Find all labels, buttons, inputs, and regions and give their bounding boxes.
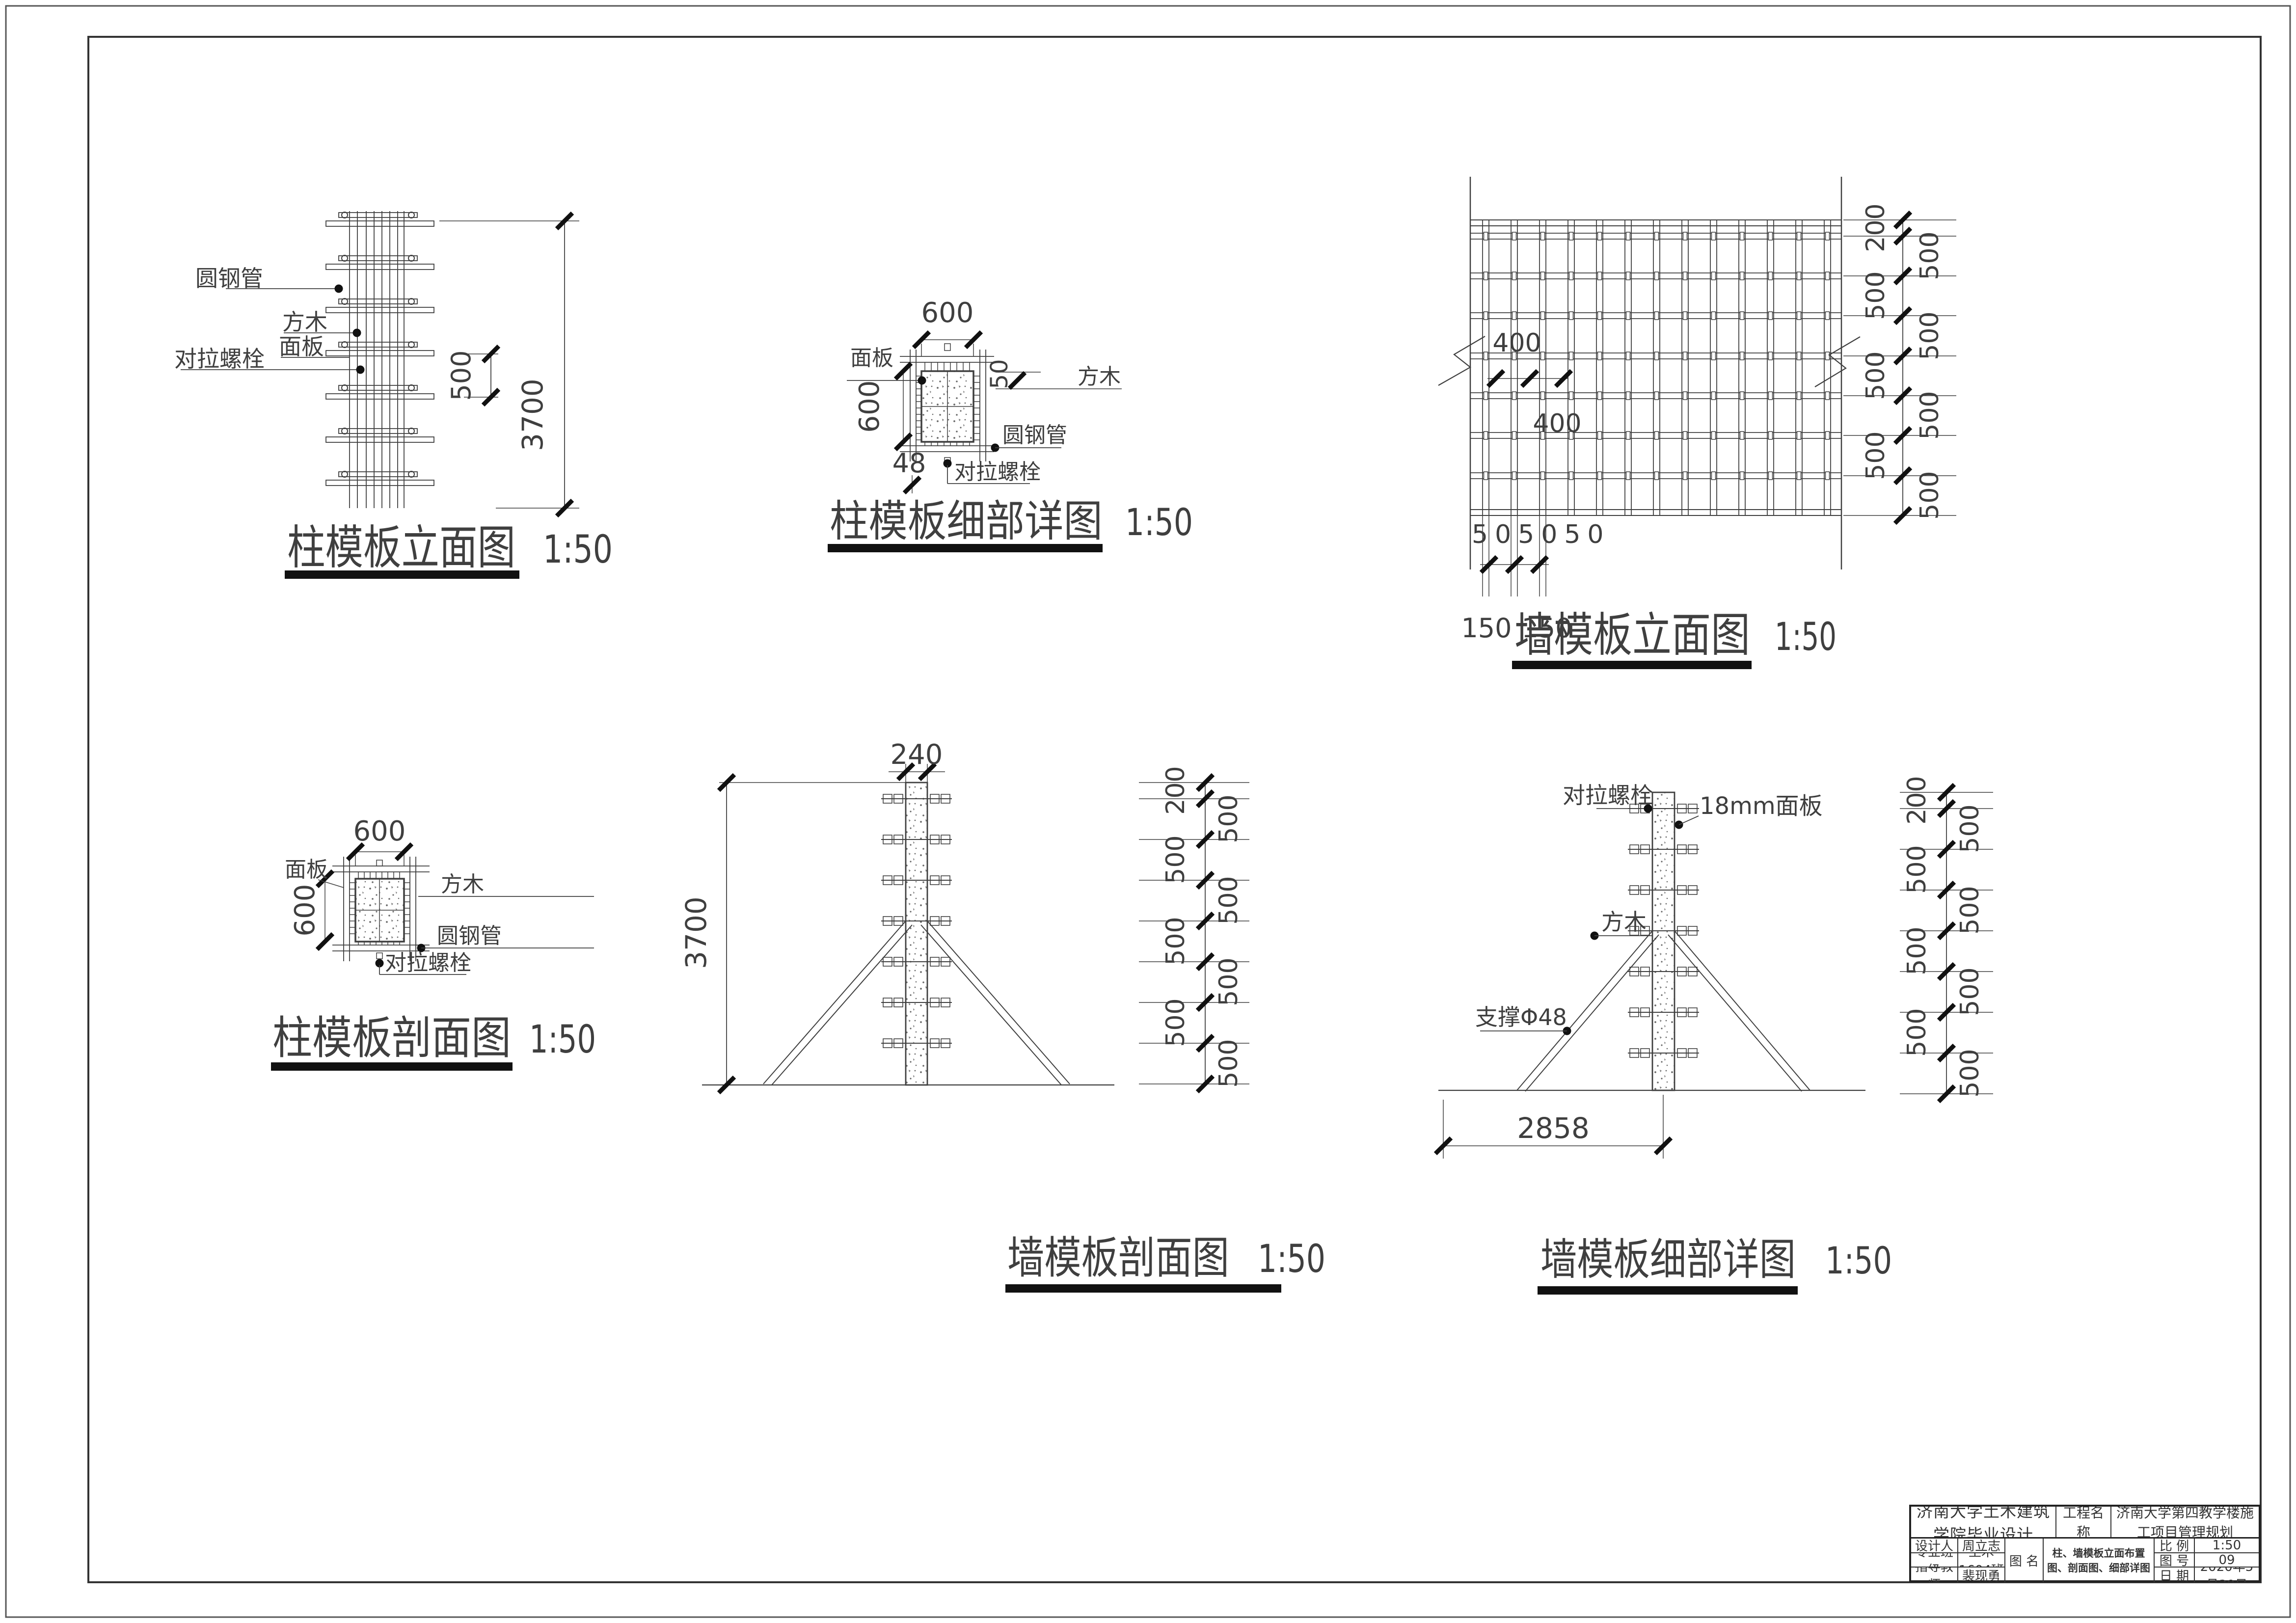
clamp-node <box>1769 312 1773 320</box>
clamp-node <box>1626 232 1630 240</box>
v3-dim-150-a: 150 <box>1461 613 1512 644</box>
rect <box>377 953 382 959</box>
clamp-node <box>1826 352 1830 360</box>
v6-label-brace-phi48: 支撑Φ48 <box>1475 1004 1567 1030</box>
clamp-node <box>1769 392 1773 400</box>
clamp-node <box>1712 472 1716 480</box>
clamp-node <box>1626 472 1630 480</box>
clamp-node <box>1683 232 1687 240</box>
clamp-node <box>1655 272 1659 280</box>
clamp-node <box>1769 352 1773 360</box>
rect <box>326 264 434 270</box>
drawing-no-value: 09 <box>2195 1553 2259 1568</box>
rect <box>339 256 417 261</box>
v6-chain-500: 500 <box>1955 804 1985 853</box>
v2-label-square-timber: 方木 <box>1078 364 1121 389</box>
clamp-node <box>1484 232 1488 240</box>
v1-label-round-steel-pipe: 圆钢管 <box>195 265 263 292</box>
clamp-node <box>1740 312 1744 320</box>
line <box>1679 816 1699 825</box>
break-mark <box>1438 336 1485 385</box>
clamp-node <box>1484 432 1488 439</box>
clamp-node <box>1598 432 1602 439</box>
clamp-node <box>1541 352 1545 360</box>
clamp-node <box>1797 432 1801 439</box>
rect <box>339 472 417 477</box>
clamp-node <box>1655 432 1659 439</box>
clamp-node <box>1826 472 1830 480</box>
clamp-node <box>1513 432 1516 439</box>
clamp-node <box>1655 232 1659 240</box>
v6-chain-500: 500 <box>1955 1049 1985 1097</box>
view6-title: 墙模板细部详图 <box>1540 1234 1796 1285</box>
clamp-node <box>1740 272 1744 280</box>
clamp-node <box>1826 312 1830 320</box>
clamp-node <box>1484 352 1488 360</box>
class-label: 专业班级 <box>1911 1553 1958 1568</box>
clamp-node <box>1740 392 1744 400</box>
v6-label-panel-18mm: 18mm面板 <box>1700 792 1823 820</box>
v4-dim-600-left: 600 <box>289 884 321 937</box>
line <box>921 925 1061 1085</box>
date-value: 2020年5月30日 <box>2195 1568 2259 1582</box>
v6-dim-2858: 2858 <box>1517 1111 1590 1145</box>
v5-dim-240: 240 <box>891 739 943 771</box>
clamp-node <box>1541 272 1545 280</box>
v4-label-square-timber: 方木 <box>441 872 484 897</box>
clamp-node <box>1626 432 1630 439</box>
clamp-node <box>1683 352 1687 360</box>
v6-chain-500: 500 <box>1955 886 1985 934</box>
view2-scale: 1:50 <box>1125 500 1193 544</box>
v2-label-panel: 面板 <box>850 346 893 371</box>
v2-dim-600-top: 600 <box>921 297 974 329</box>
v3-dim-400-b: 400 <box>1533 409 1581 438</box>
v6-chain-500: 500 <box>1902 1008 1932 1056</box>
clamp-node <box>1484 472 1488 480</box>
rect <box>326 437 434 442</box>
title-underline <box>1538 1286 1798 1295</box>
clamp-node <box>1712 312 1716 320</box>
line <box>772 925 912 1085</box>
v4-label-tie-bolt: 对拉螺栓 <box>385 950 471 975</box>
rect <box>6 6 2290 1617</box>
clamp-node <box>1598 352 1602 360</box>
view6-scale: 1:50 <box>1825 1239 1892 1282</box>
v5-chain-500: 500 <box>1214 957 1243 1006</box>
clamp-node <box>1740 352 1744 360</box>
v1-label-tie-bolt: 对拉螺栓 <box>174 346 265 372</box>
scale-value: 1:50 <box>2195 1539 2259 1553</box>
clamp-node <box>1626 352 1630 360</box>
clamp-node <box>1655 352 1659 360</box>
v2-label-round-steel-pipe: 圆钢管 <box>1002 423 1067 448</box>
clamp-node <box>1598 472 1602 480</box>
rect <box>326 307 434 313</box>
advisor-value: 裴现勇 <box>1958 1568 2005 1582</box>
clamp-node <box>1569 352 1573 360</box>
clamp-node <box>1513 272 1516 280</box>
clamp-node <box>1484 392 1488 400</box>
v5-dim-3700: 3700 <box>679 896 713 969</box>
line <box>1675 931 1810 1090</box>
v2-dim-50: 50 <box>986 359 1013 389</box>
page-border <box>6 6 2290 1617</box>
v3-chain-200: 200 <box>1861 203 1891 252</box>
view3-scale: 1:50 <box>1775 615 1837 659</box>
clamp-node <box>1513 472 1516 480</box>
clamp-node <box>1797 352 1801 360</box>
title-block-detail-rows: 设计人 周立志 专业班级 土木1604班 指导教师 裴现勇 图 名 柱、墙模板立… <box>1911 1539 2259 1582</box>
v1-label-panel: 面板 <box>279 333 324 360</box>
v2-label-tie-bolt: 对拉螺栓 <box>954 460 1041 485</box>
clamp-node <box>1683 392 1687 400</box>
project-name-value: 济南大学第四教学楼施工项目管理规划 <box>2111 1507 2259 1537</box>
cad-canvas: 圆钢管 方木 面板 对拉螺栓 500 3700 柱模板立面图 1:50 600 … <box>0 0 2296 1623</box>
title-underline <box>1005 1284 1281 1293</box>
view5-scale: 1:50 <box>1258 1237 1325 1281</box>
scale-label: 比 例 <box>2155 1539 2195 1553</box>
clamp-node <box>1569 392 1573 400</box>
clamp-node <box>1569 272 1573 280</box>
clamp-node <box>1769 472 1773 480</box>
v5-chain-500: 500 <box>1214 794 1243 843</box>
v6-chain-500: 500 <box>1955 967 1985 1016</box>
v1-label-square-timber: 方木 <box>282 309 327 335</box>
rect <box>339 385 417 390</box>
clamp-node <box>1598 272 1602 280</box>
rect <box>326 394 434 399</box>
clamp-node <box>1797 472 1801 480</box>
v6-chain-500: 500 <box>1902 926 1932 975</box>
clamp-node <box>1826 272 1830 280</box>
clamp-node <box>1598 392 1602 400</box>
clamp-node <box>1655 392 1659 400</box>
class-value: 土木1604班 <box>1958 1553 2005 1568</box>
rect <box>377 860 382 866</box>
v6-label-square-timber: 方木 <box>1601 909 1647 935</box>
rect <box>339 429 417 433</box>
rect <box>906 783 927 1085</box>
v3-dim-50x3: 505050 <box>1472 520 1611 549</box>
clamp-node <box>1683 472 1687 480</box>
v6-chain-500: 500 <box>1902 845 1932 893</box>
clamp-node <box>1740 432 1744 439</box>
clamp-node <box>1712 352 1716 360</box>
v3-chain-500: 500 <box>1915 231 1945 280</box>
v1-dim-3700: 3700 <box>516 379 549 451</box>
clamp-node <box>1683 272 1687 280</box>
clamp-node <box>1541 232 1545 240</box>
drawing-sheet: 圆钢管 方木 面板 对拉螺栓 500 3700 柱模板立面图 1:50 600 … <box>0 0 2296 1623</box>
clamp-node <box>1513 312 1516 320</box>
view3-title: 墙模板立面图 <box>1514 608 1750 662</box>
clamp-node <box>1541 472 1545 480</box>
v4-label-panel: 面板 <box>285 857 328 882</box>
clamp-node <box>1740 232 1744 240</box>
date-label: 日 期 <box>2155 1568 2195 1582</box>
clamp-node <box>1797 312 1801 320</box>
rect <box>326 221 434 226</box>
designer-label: 设计人 <box>1911 1539 1958 1553</box>
v1-dim-500: 500 <box>446 350 477 401</box>
view2-title: 柱模板细部详图 <box>830 496 1103 546</box>
clamp-node <box>1626 312 1630 320</box>
clamp-node <box>1598 312 1602 320</box>
leader-dot <box>918 377 926 385</box>
view1-scale: 1:50 <box>543 528 613 572</box>
clamp-node <box>1740 472 1744 480</box>
v5-chain-200: 200 <box>1161 766 1190 814</box>
clamp-node <box>1598 232 1602 240</box>
v5-chain-500: 500 <box>1161 998 1190 1047</box>
clamp-node <box>1826 432 1830 439</box>
clamp-node <box>1569 232 1573 240</box>
v6-chain-200: 200 <box>1902 776 1932 824</box>
clamp-node <box>1797 232 1801 240</box>
university-name: 济南大学土木建筑学院毕业设计 <box>1911 1507 2056 1537</box>
clamp-node <box>1626 272 1630 280</box>
v2-dim-48: 48 <box>892 448 926 479</box>
v4-dim-600-top: 600 <box>353 815 406 847</box>
v3-chain-500: 500 <box>1915 311 1945 360</box>
designer-value: 周立志 <box>1958 1539 2005 1553</box>
advisor-label: 指导教师 <box>1911 1568 1958 1582</box>
v2-dim-600-left: 600 <box>854 380 886 433</box>
clamp-node <box>1712 432 1716 439</box>
view4-scale: 1:50 <box>529 1018 596 1062</box>
clamp-node <box>1826 392 1830 400</box>
clamp-node <box>1712 392 1716 400</box>
clamp-node <box>1513 232 1516 240</box>
v6-label-tie-bolt: 对拉螺栓 <box>1563 782 1653 809</box>
clamp-node <box>1655 472 1659 480</box>
view1-title: 柱模板立面图 <box>287 521 515 575</box>
drawing-name-label: 图 名 <box>2005 1539 2044 1582</box>
rect <box>326 351 434 356</box>
v3-chain-500: 500 <box>1861 351 1891 400</box>
rect <box>339 342 417 347</box>
v5-chain-500: 500 <box>1161 835 1190 884</box>
title-block: 济南大学土木建筑学院毕业设计 工程名称 济南大学第四教学楼施工项目管理规划 设计… <box>1909 1505 2261 1582</box>
clamp-node <box>1683 312 1687 320</box>
clamp-node <box>1826 232 1830 240</box>
leader-dot <box>353 329 361 337</box>
project-name-label: 工程名称 <box>2056 1507 2111 1537</box>
rect <box>339 213 417 217</box>
clamp-node <box>1541 392 1545 400</box>
clamp-node <box>1655 312 1659 320</box>
clamp-node <box>1797 392 1801 400</box>
title-block-header-row: 济南大学土木建筑学院毕业设计 工程名称 济南大学第四教学楼施工项目管理规划 <box>1911 1507 2259 1539</box>
v3-chain-500: 500 <box>1861 271 1891 320</box>
clamp-node <box>1797 272 1801 280</box>
clamp-node <box>1769 272 1773 280</box>
rect <box>326 480 434 486</box>
break-mark <box>1815 337 1860 387</box>
v4-label-round-steel-pipe: 圆钢管 <box>437 923 502 948</box>
rect <box>945 344 950 351</box>
view4-title: 柱模板剖面图 <box>272 1012 511 1064</box>
clamp-node <box>1484 312 1488 320</box>
v3-chain-500: 500 <box>1915 391 1945 439</box>
v5-chain-500: 500 <box>1161 917 1190 965</box>
leader-dot <box>356 366 365 374</box>
clamp-node <box>1626 392 1630 400</box>
v3-dim-400-a: 400 <box>1492 328 1541 358</box>
clamp-node <box>1569 312 1573 320</box>
clamp-node <box>1484 272 1488 280</box>
drawing-name-value: 柱、墙模板立面布置图、剖面图、细部详图 <box>2044 1539 2155 1582</box>
clamp-node <box>1569 472 1573 480</box>
clamp-node <box>1683 432 1687 439</box>
clamp-node <box>1541 312 1545 320</box>
leader-dot <box>335 285 343 293</box>
clamp-node <box>1769 432 1773 439</box>
clamp-node <box>1513 392 1516 400</box>
v3-chain-500: 500 <box>1915 471 1945 519</box>
wall-formwork-section-drawing <box>702 764 1281 1293</box>
rect <box>1652 792 1675 1090</box>
v5-chain-500: 500 <box>1214 876 1243 924</box>
drawing-no-label: 图 号 <box>2155 1553 2195 1568</box>
clamp-node <box>1769 232 1773 240</box>
rect <box>339 299 417 304</box>
v3-chain-500: 500 <box>1861 431 1891 480</box>
v5-chain-500: 500 <box>1214 1039 1243 1087</box>
clamp-node <box>1712 232 1716 240</box>
clamp-node <box>1712 272 1716 280</box>
view5-title: 墙模板剖面图 <box>1007 1232 1229 1284</box>
